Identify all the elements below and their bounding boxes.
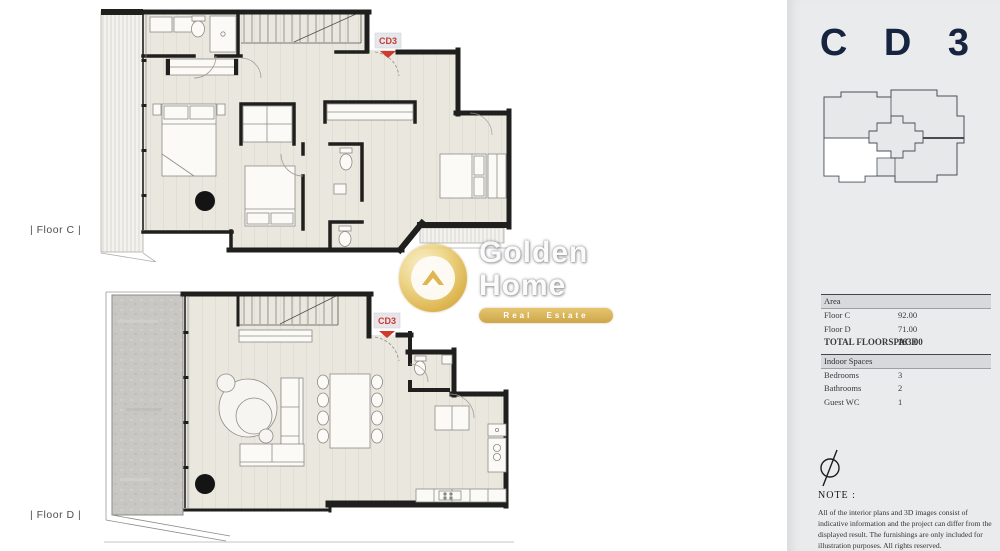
row-label: Bedrooms: [824, 370, 859, 380]
basin-icon: [334, 184, 346, 194]
toilet-icon: [339, 226, 351, 247]
bed-icon: [153, 104, 225, 176]
floorplan-sheet: | Floor C |: [0, 0, 1000, 551]
toilet-icon: [192, 16, 206, 37]
floor-c-label: | Floor C |: [30, 224, 81, 236]
closet-icon: [327, 104, 413, 120]
toilet-icon: [415, 356, 427, 375]
basin-icon: [442, 355, 452, 364]
row-value: 1: [898, 396, 902, 410]
balcony-bottom-right: [420, 228, 507, 248]
building-keyplan: [817, 83, 972, 191]
vanity-icon: [150, 17, 194, 32]
table-row: Bedrooms 3: [821, 369, 991, 383]
row-value: 92.00: [898, 309, 917, 323]
indoor-table-header: Indoor Spaces: [821, 354, 991, 369]
table-row: Guest WC 1: [821, 396, 991, 410]
bed-icon: [245, 166, 295, 226]
column-dot: [195, 191, 215, 211]
row-label: Guest WC: [824, 397, 860, 407]
table-row: Bathrooms 2: [821, 382, 991, 396]
table-row: Floor C 92.00: [821, 309, 991, 323]
info-tables: Area Floor C 92.00 Floor D 71.00 TOTAL F…: [821, 294, 991, 409]
sideboard-icon: [239, 330, 312, 342]
note-body: All of the interior plans and 3D images …: [818, 507, 994, 551]
sidebar: C D 3 Area Floor C 92.00 Floor D 71.00 T…: [787, 0, 1000, 551]
row-label: Bathrooms: [824, 383, 861, 393]
floor-c-plan: CD3: [98, 4, 536, 262]
toilet-icon: [340, 148, 352, 170]
note-title: NOTE :: [818, 490, 856, 501]
wardrobe-icon: [488, 154, 506, 198]
floor-d-label: | Floor D |: [30, 509, 81, 521]
unit-marker-label: CD3: [379, 36, 397, 46]
row-value: 2: [898, 382, 902, 396]
row-value: 3: [898, 369, 902, 383]
row-label: Floor D: [824, 324, 851, 334]
row-value: 163.00: [898, 336, 923, 350]
table-row: Floor D 71.00: [821, 323, 991, 337]
north-arrow-icon: [816, 448, 846, 488]
unit-title: C D 3: [788, 22, 1000, 65]
floor-d-plan: CD3: [98, 286, 536, 548]
closet-icon: [243, 106, 292, 142]
area-table-header: Area: [821, 294, 991, 309]
bed-icon: [440, 154, 486, 198]
row-value: 71.00: [898, 323, 917, 337]
unit-marker-label: CD3: [378, 316, 396, 326]
row-label: Floor C: [824, 310, 850, 320]
wardrobe-icon: [166, 59, 238, 75]
column-dot: [195, 474, 215, 494]
shower-icon: [210, 16, 236, 52]
total-row: TOTAL FLOORSPACE 163.00: [821, 336, 991, 350]
